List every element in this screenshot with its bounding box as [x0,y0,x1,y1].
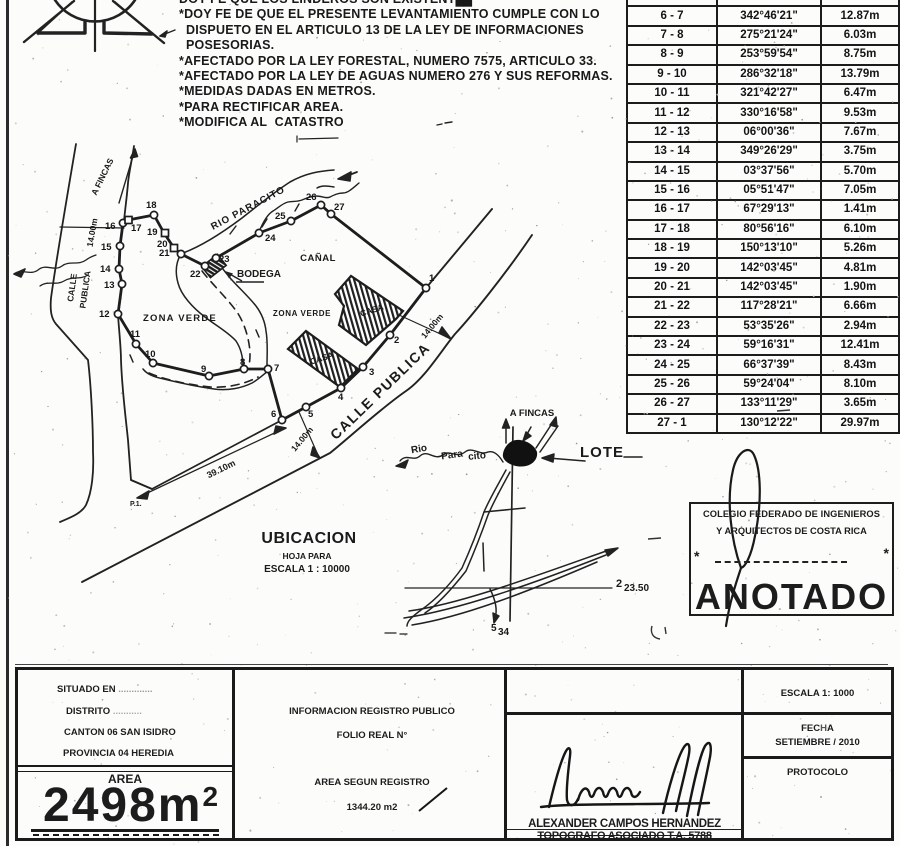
svg-text:19: 19 [147,227,158,238]
svg-text:39.10m: 39.10m [205,458,237,480]
svg-text:26: 26 [306,192,317,203]
svg-text:11: 11 [130,329,141,340]
svg-text:5: 5 [308,409,314,420]
svg-text:34: 34 [498,627,510,638]
svg-text:14.00m: 14.00m [85,217,100,248]
svg-text:21: 21 [159,248,170,259]
svg-text:16: 16 [105,221,116,232]
svg-text:9: 9 [201,364,206,375]
svg-text:PUBLICA: PUBLICA [77,270,92,309]
svg-text:ZONA VERDE: ZONA VERDE [143,313,217,324]
svg-text:23: 23 [219,254,230,265]
svg-text:5: 5 [491,623,497,634]
svg-text:22: 22 [190,269,201,280]
svg-text:1: 1 [429,273,435,284]
svg-text:12: 12 [99,309,110,320]
svg-text:7: 7 [274,363,279,374]
svg-text:ESCALA 1 : 10000: ESCALA 1 : 10000 [264,564,350,575]
svg-text:13: 13 [104,280,115,291]
svg-text:23.50: 23.50 [624,583,649,594]
svg-text:UBICACION: UBICACION [261,530,356,547]
svg-text:14: 14 [100,264,111,275]
svg-text:4: 4 [338,392,344,403]
svg-text:15: 15 [101,242,112,253]
svg-text:HOJA PARA: HOJA PARA [282,551,331,561]
svg-text:BODEGA: BODEGA [237,269,281,280]
svg-text:17: 17 [131,223,142,234]
svg-text:CALLE: CALLE [65,273,79,303]
svg-text:6: 6 [271,409,276,420]
svg-text:LOTE: LOTE [580,444,624,461]
svg-text:10: 10 [145,349,156,360]
svg-text:P.1.: P.1. [130,501,142,508]
svg-text:2: 2 [616,578,622,590]
svg-text:27: 27 [334,202,345,213]
svg-text:25: 25 [275,211,286,222]
svg-text:A FINCAS: A FINCAS [510,408,555,419]
svg-text:3: 3 [369,367,374,378]
svg-text:2: 2 [394,335,399,346]
svg-text:cito: cito [468,450,487,463]
svg-text:A FINCAS: A FINCAS [89,156,116,196]
svg-text:8: 8 [240,357,245,368]
svg-text:24: 24 [265,233,276,244]
svg-text:ZONA VERDE: ZONA VERDE [273,309,331,318]
svg-text:CAÑAL: CAÑAL [300,253,336,264]
svg-text:18: 18 [146,200,157,211]
svg-text:Para: Para [441,448,464,462]
